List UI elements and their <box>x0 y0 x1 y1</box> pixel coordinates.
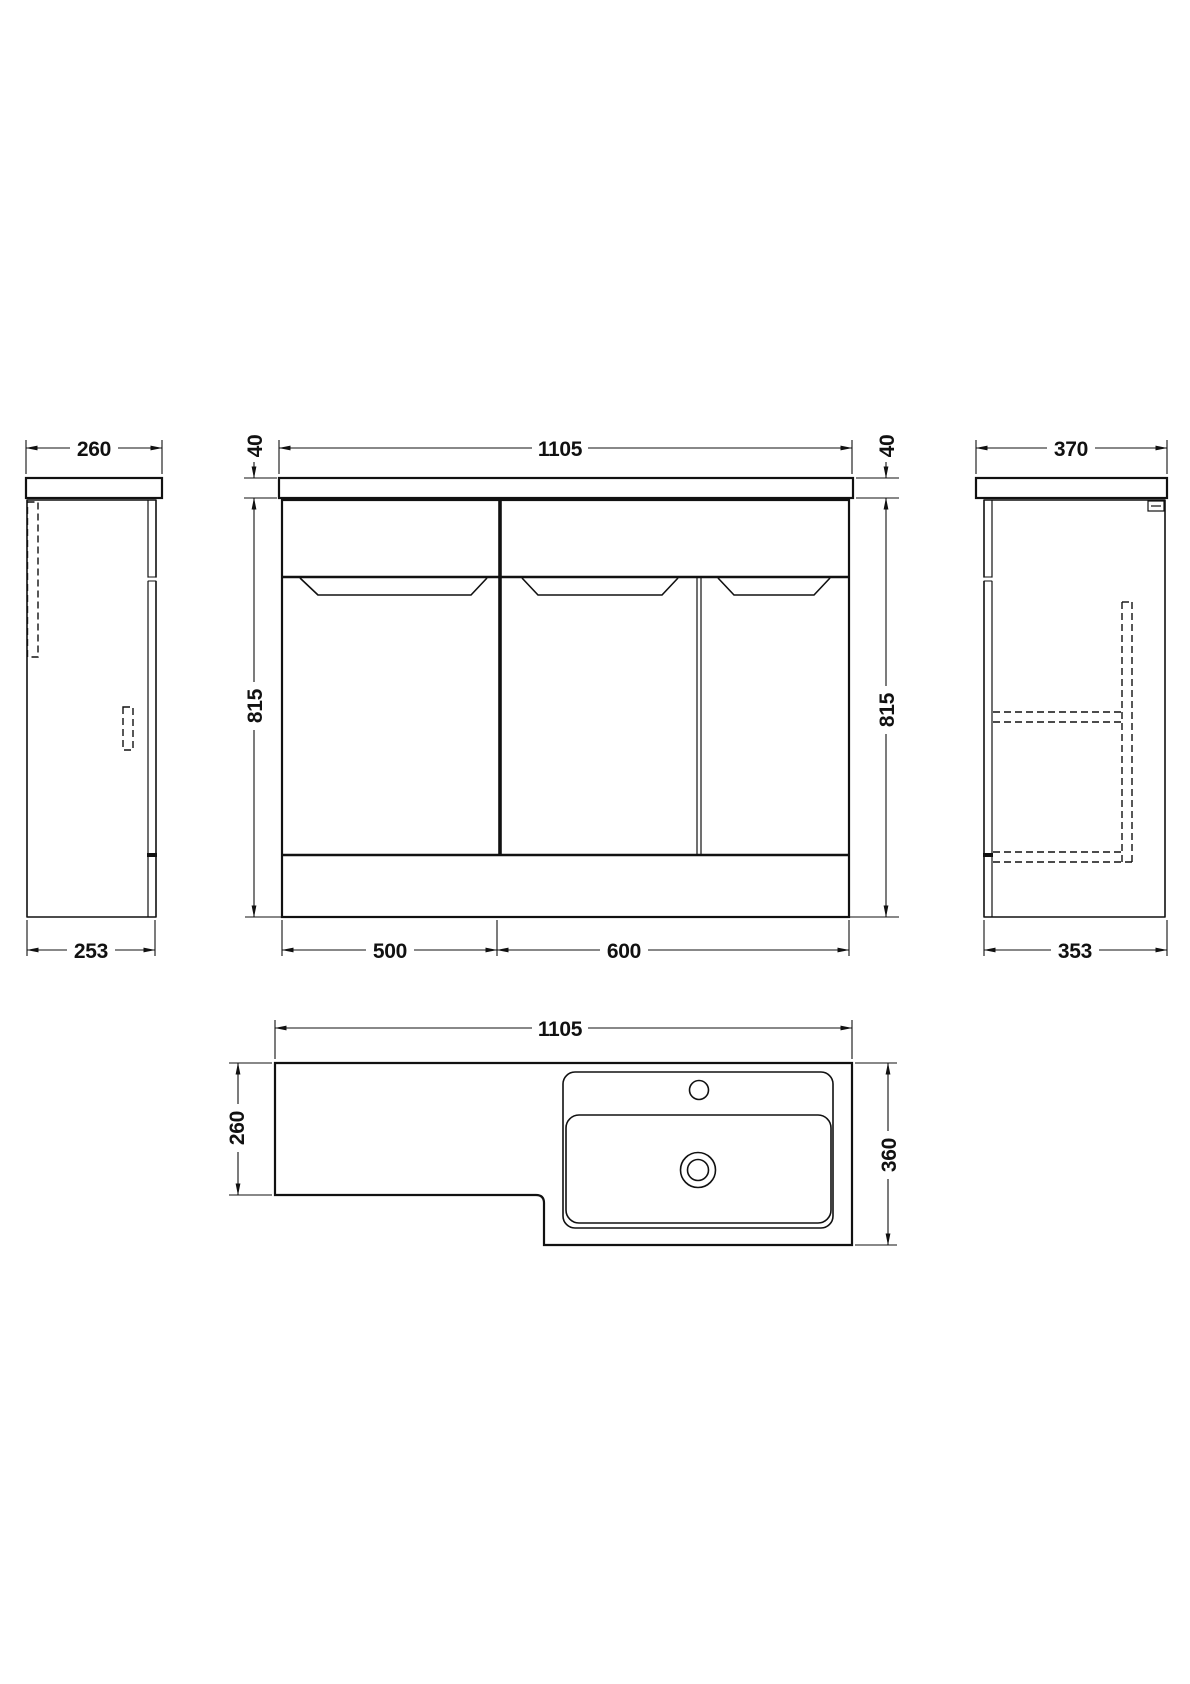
left-side-view: 260 253 <box>26 437 162 963</box>
handle-recess-left-door <box>300 578 487 595</box>
basin-ledge <box>563 1072 833 1228</box>
dimension-front-right-heights: 40 815 <box>850 430 899 917</box>
dimension-plan-width: 1105 <box>275 1017 852 1059</box>
hidden-hanging-rail <box>28 502 39 657</box>
worktop-side <box>26 478 162 498</box>
dimension-side-right-top: 370 <box>976 437 1167 474</box>
dim-label-front-height-left: 815 <box>244 688 267 723</box>
technical-drawing-page: 260 253 1105 <box>0 0 1190 1684</box>
wall-bracket-icon <box>1148 501 1164 511</box>
handle-recess-right-door <box>718 578 830 595</box>
worktop-front <box>279 478 853 498</box>
cabinet-side-panel <box>27 500 156 917</box>
dim-label-front-section-right: 600 <box>607 940 641 963</box>
dim-label-side-left-top: 260 <box>77 438 111 461</box>
dimension-front-left-heights: 40 815 <box>244 430 281 917</box>
plan-view: 1105 260 360 <box>226 1017 901 1245</box>
dimension-plan-depth-left: 260 <box>226 1063 272 1195</box>
dim-label-front-worktop-right: 40 <box>876 435 899 458</box>
basin-bowl <box>566 1115 831 1223</box>
handle-recess-middle-door <box>522 578 678 595</box>
dimension-plan-depth-right: 360 <box>855 1063 901 1245</box>
dim-label-plan-width: 1105 <box>538 1018 583 1041</box>
dimension-side-left-bottom: 253 <box>27 920 155 963</box>
worktop-side-right <box>976 478 1167 498</box>
dim-label-side-right-bottom: 353 <box>1058 940 1092 963</box>
cabinet-side-panel-right <box>984 500 1165 917</box>
waste-outlet-inner-icon <box>688 1160 709 1181</box>
dim-label-front-worktop-left: 40 <box>244 435 267 458</box>
dimension-front-width: 1105 <box>279 437 852 474</box>
dimension-side-left-top: 260 <box>26 437 162 474</box>
dimension-front-sections: 500 600 <box>282 920 849 963</box>
right-side-view: 370 353 <box>976 437 1167 963</box>
door-bottom-tick <box>147 853 157 857</box>
dim-label-side-right-top: 370 <box>1054 438 1088 461</box>
dim-label-plan-depth-right: 360 <box>878 1138 901 1172</box>
dim-label-front-section-left: 500 <box>373 940 407 963</box>
dim-label-front-height-right: 815 <box>876 692 899 727</box>
door-bottom-tick-right <box>983 853 993 857</box>
hidden-fixing-block <box>123 707 133 750</box>
waste-outlet-outer-icon <box>681 1153 716 1188</box>
dim-label-plan-depth-left: 260 <box>226 1111 249 1145</box>
vanity-unit-drawing: 260 253 1105 <box>0 0 1190 1684</box>
hidden-shelf-lines <box>993 602 1132 862</box>
dimension-side-right-bottom: 353 <box>984 920 1167 963</box>
dim-label-side-left-bottom: 253 <box>74 940 108 963</box>
dim-label-front-width: 1105 <box>538 438 583 461</box>
front-view: 1105 40 815 40 <box>244 430 899 963</box>
tap-hole-icon <box>690 1081 709 1100</box>
